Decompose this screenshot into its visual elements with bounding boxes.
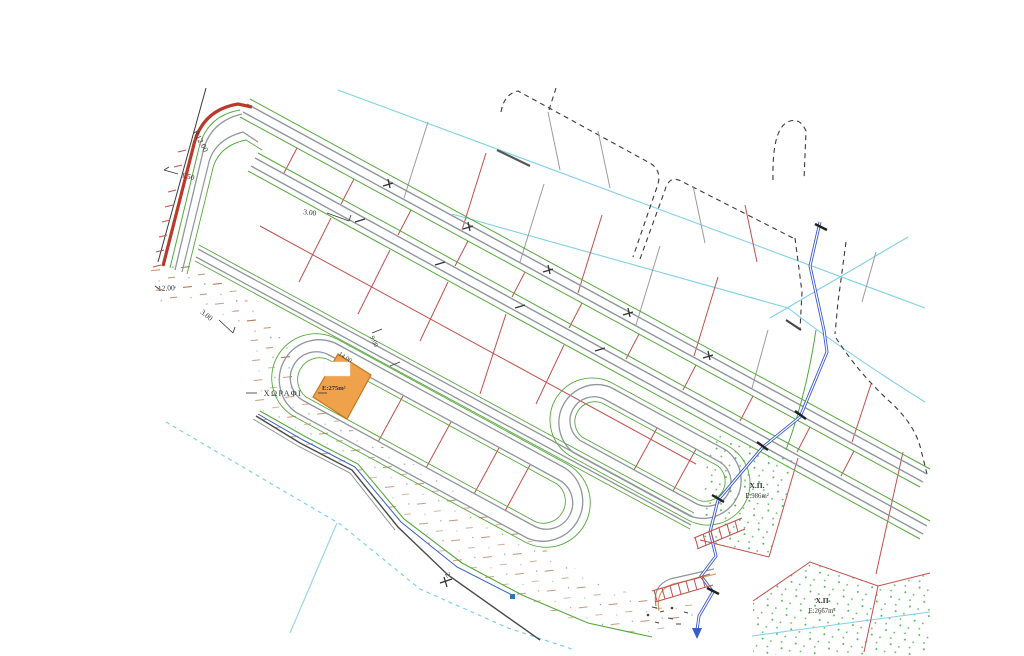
plan-page: R12.00 1.50 3.00 12.00 3.00 14.00 9.00 2… (0, 0, 1024, 656)
parcel-area-label: E:275m² (322, 385, 346, 392)
setback-top-label: 3.00 (303, 207, 317, 218)
field-label: ΧΩΡΑΦΙ (264, 389, 302, 398)
green-space-2-name: Χ.Π (815, 596, 828, 605)
blue-node-marker (510, 594, 515, 599)
green-space-1-area: E:986m² (745, 493, 769, 500)
dim-12-label: 12.00 (158, 283, 176, 293)
building-footprint (324, 362, 350, 376)
green-space-2-area: E:2667m² (809, 608, 836, 615)
green-space-1-name: Χ.Π. (750, 481, 765, 490)
cadastral-map: R12.00 1.50 3.00 12.00 3.00 14.00 9.00 2… (0, 0, 1024, 656)
